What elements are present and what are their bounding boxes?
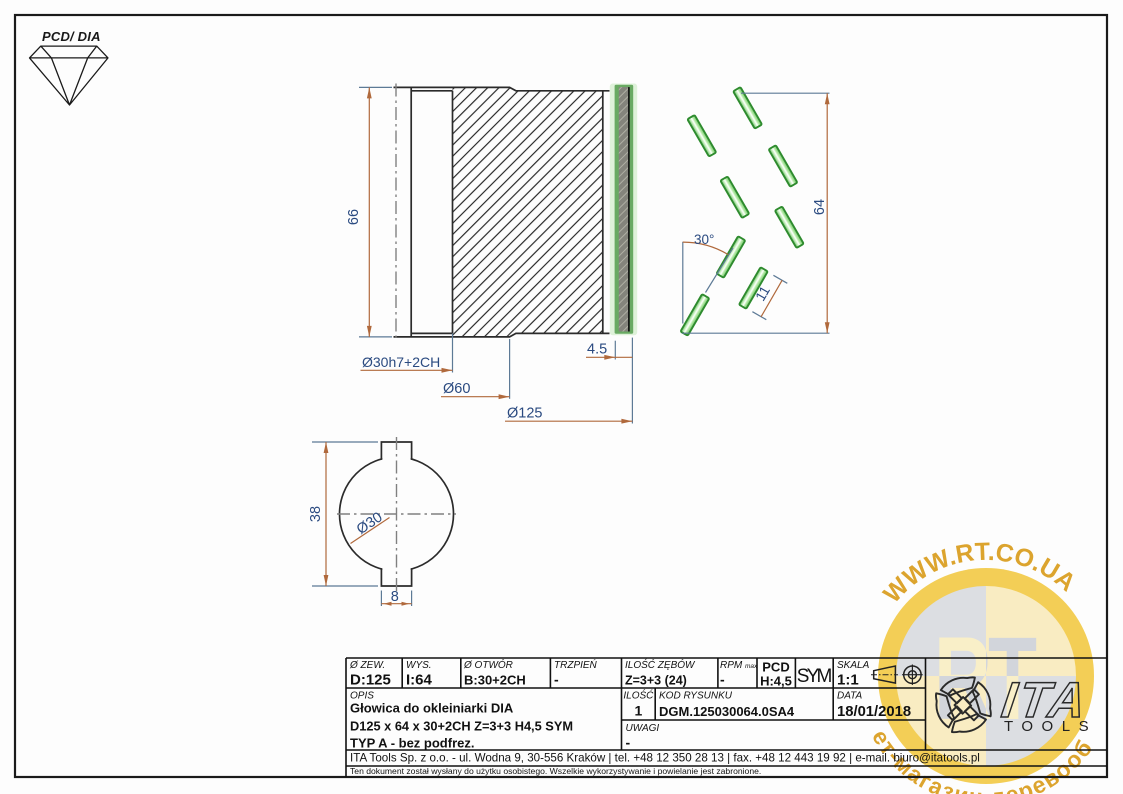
svg-text:ILOŚĆ ZĘBÓW: ILOŚĆ ZĘBÓW [625, 658, 696, 671]
svg-text:B:30+2CH: B:30+2CH [464, 673, 526, 688]
svg-text:UWAGI: UWAGI [626, 723, 660, 734]
svg-text:38: 38 [308, 506, 324, 522]
svg-text:D125 x 64 x 30+2CH Z=3+3 H4,5: D125 x 64 x 30+2CH Z=3+3 H4,5 SYM [350, 719, 573, 734]
svg-text:I:64: I:64 [406, 672, 433, 689]
svg-text:PCD/ DIA: PCD/ DIA [42, 29, 101, 44]
svg-text:WYS.: WYS. [406, 660, 432, 671]
svg-text:ILOŚĆ: ILOŚĆ [623, 689, 654, 702]
svg-text:Ten dokument został wysłany do: Ten dokument został wysłany do użytku os… [350, 766, 761, 776]
svg-text:-: - [554, 672, 559, 688]
svg-text:Głowica do okleiniarki DIA: Głowica do okleiniarki DIA [350, 701, 514, 716]
svg-text:18/01/2018: 18/01/2018 [837, 704, 911, 720]
svg-text:SKALA: SKALA [837, 660, 870, 671]
svg-text:64: 64 [812, 199, 828, 215]
svg-text:Ø30h7+2CH: Ø30h7+2CH [362, 354, 440, 370]
svg-text:-: - [626, 735, 631, 751]
svg-text:TRZPIEŃ: TRZPIEŃ [554, 658, 598, 671]
svg-text:PCD: PCD [762, 660, 789, 675]
svg-text:66: 66 [346, 209, 362, 225]
svg-text:Ø125: Ø125 [507, 406, 542, 422]
svg-text:TOOLS: TOOLS [1004, 718, 1097, 735]
svg-text:1:1: 1:1 [837, 672, 859, 689]
svg-text:DGM.125030064.0SA4: DGM.125030064.0SA4 [659, 704, 795, 719]
svg-text:8: 8 [391, 589, 399, 605]
svg-text:Z=3+3 (24): Z=3+3 (24) [625, 674, 687, 688]
svg-text:TYP A - bez podfrez.: TYP A - bez podfrez. [350, 736, 474, 751]
svg-text:H:4,5: H:4,5 [760, 674, 792, 689]
svg-text:D:125: D:125 [350, 672, 391, 689]
svg-text:30°: 30° [694, 232, 714, 247]
svg-text:4.5: 4.5 [587, 342, 607, 358]
svg-text:Ø OTWÓR: Ø OTWÓR [463, 658, 513, 671]
svg-text:-: - [720, 672, 725, 688]
svg-text:KOD RYSUNKU: KOD RYSUNKU [659, 691, 733, 702]
svg-text:ITA Tools Sp. z o.o. - ul. Wod: ITA Tools Sp. z o.o. - ul. Wodna 9, 30-5… [350, 752, 980, 765]
svg-text:SYM: SYM [797, 666, 833, 687]
svg-text:Ø60: Ø60 [443, 381, 470, 397]
svg-text:DATA: DATA [837, 691, 863, 702]
svg-text:Ø ZEW.: Ø ZEW. [349, 660, 385, 671]
svg-text:1: 1 [635, 703, 643, 719]
